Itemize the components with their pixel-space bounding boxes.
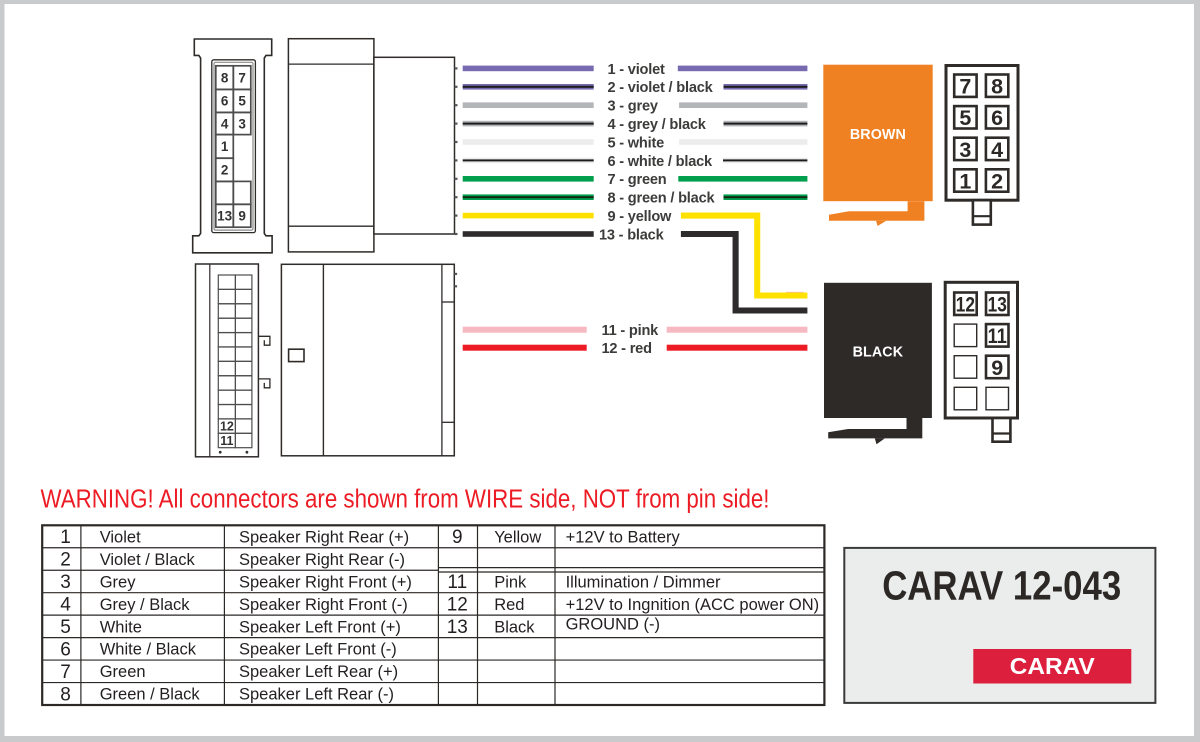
svg-text:4 - grey / black: 4 - grey / black: [608, 117, 707, 133]
svg-text:Speaker Left Rear (-): Speaker Left Rear (-): [239, 686, 394, 704]
svg-text:White: White: [100, 618, 142, 636]
svg-text:1: 1: [60, 527, 71, 548]
svg-text:6 - white / black: 6 - white / black: [608, 154, 714, 170]
svg-text:2: 2: [221, 163, 229, 178]
svg-text:Violet: Violet: [100, 528, 141, 546]
svg-text:1: 1: [959, 169, 971, 193]
svg-text:Grey / Black: Grey / Black: [100, 596, 191, 614]
svg-text:7: 7: [60, 662, 71, 683]
svg-text:8: 8: [991, 75, 1003, 99]
svg-text:4: 4: [991, 138, 1003, 162]
svg-text:Illumination / Dimmer: Illumination / Dimmer: [566, 573, 721, 591]
svg-text:13: 13: [988, 293, 1007, 317]
svg-text:12: 12: [956, 293, 975, 317]
svg-text:Black: Black: [494, 618, 535, 636]
svg-text:7 - green: 7 - green: [608, 172, 667, 188]
svg-text:Violet / Black: Violet / Black: [100, 551, 196, 569]
svg-text:5: 5: [238, 94, 246, 109]
svg-text:CARAV: CARAV: [1010, 653, 1095, 679]
svg-text:1 - violet: 1 - violet: [608, 62, 666, 78]
svg-text:5: 5: [60, 617, 71, 638]
svg-text:11: 11: [447, 572, 467, 593]
svg-text:9 - yellow: 9 - yellow: [608, 209, 673, 225]
svg-text:GROUND (-): GROUND (-): [566, 615, 660, 633]
svg-text:13 - black: 13 - black: [599, 227, 665, 243]
svg-text:+12V to Battery: +12V to Battery: [566, 528, 681, 546]
svg-text:13: 13: [217, 209, 233, 224]
svg-text:Speaker Right Rear (+): Speaker Right Rear (+): [239, 528, 409, 546]
svg-text:Speaker Right Front (+): Speaker Right Front (+): [239, 573, 412, 591]
svg-text:Grey: Grey: [100, 573, 137, 591]
svg-text:3: 3: [959, 138, 971, 162]
svg-text:WARNING! All connectors are sh: WARNING! All connectors are shown from W…: [41, 486, 770, 514]
svg-text:9: 9: [452, 527, 463, 548]
svg-text:Speaker Right Rear (-): Speaker Right Rear (-): [239, 551, 405, 569]
svg-text:Speaker Left Front (-): Speaker Left Front (-): [239, 641, 397, 659]
svg-text:12: 12: [220, 420, 234, 434]
svg-text:+12V to Ingnition (ACC power O: +12V to Ingnition (ACC power ON): [566, 596, 820, 614]
svg-text:2: 2: [991, 169, 1003, 193]
svg-text:BROWN: BROWN: [850, 127, 906, 143]
svg-text:13: 13: [447, 617, 468, 638]
svg-text:Green: Green: [100, 663, 146, 681]
svg-text:6: 6: [60, 640, 71, 661]
svg-text:8 - green / black: 8 - green / black: [608, 191, 716, 207]
svg-text:3: 3: [60, 572, 71, 593]
svg-text:6: 6: [991, 106, 1003, 130]
svg-text:Red: Red: [494, 596, 524, 614]
svg-text:5 - white: 5 - white: [608, 135, 665, 151]
svg-text:4: 4: [60, 595, 71, 616]
svg-text:9: 9: [991, 356, 1003, 380]
svg-text:5: 5: [959, 106, 971, 130]
svg-text:Speaker Right Front (-): Speaker Right Front (-): [239, 596, 408, 614]
svg-text:12 - red: 12 - red: [602, 341, 652, 357]
svg-text:Pink: Pink: [494, 573, 527, 591]
svg-text:11 - pink: 11 - pink: [602, 323, 660, 339]
svg-text:White / Black: White / Black: [100, 641, 197, 659]
svg-text:7: 7: [959, 75, 971, 99]
svg-text:12: 12: [447, 595, 468, 616]
svg-text:1: 1: [221, 139, 229, 154]
svg-text:9: 9: [238, 209, 246, 224]
svg-text:Green / Black: Green / Black: [100, 686, 201, 704]
svg-text:BLACK: BLACK: [853, 345, 904, 361]
svg-text:2: 2: [60, 550, 71, 571]
svg-text:Yellow: Yellow: [494, 528, 541, 546]
svg-text:7: 7: [238, 70, 246, 85]
svg-text:2 - violet / black: 2 - violet / black: [608, 80, 714, 96]
svg-text:CARAV 12-043: CARAV 12-043: [882, 563, 1121, 609]
svg-text:4: 4: [221, 116, 229, 131]
svg-text:8: 8: [60, 685, 71, 706]
svg-text:8: 8: [221, 70, 229, 85]
svg-text:3 - grey: 3 - grey: [608, 99, 659, 115]
svg-text:Speaker Left Front (+): Speaker Left Front (+): [239, 618, 401, 636]
svg-text:11: 11: [220, 434, 233, 448]
svg-text:Speaker Left Rear (+): Speaker Left Rear (+): [239, 663, 398, 681]
svg-text:3: 3: [238, 116, 246, 131]
svg-text:6: 6: [221, 94, 229, 109]
svg-text:11: 11: [988, 324, 1007, 348]
